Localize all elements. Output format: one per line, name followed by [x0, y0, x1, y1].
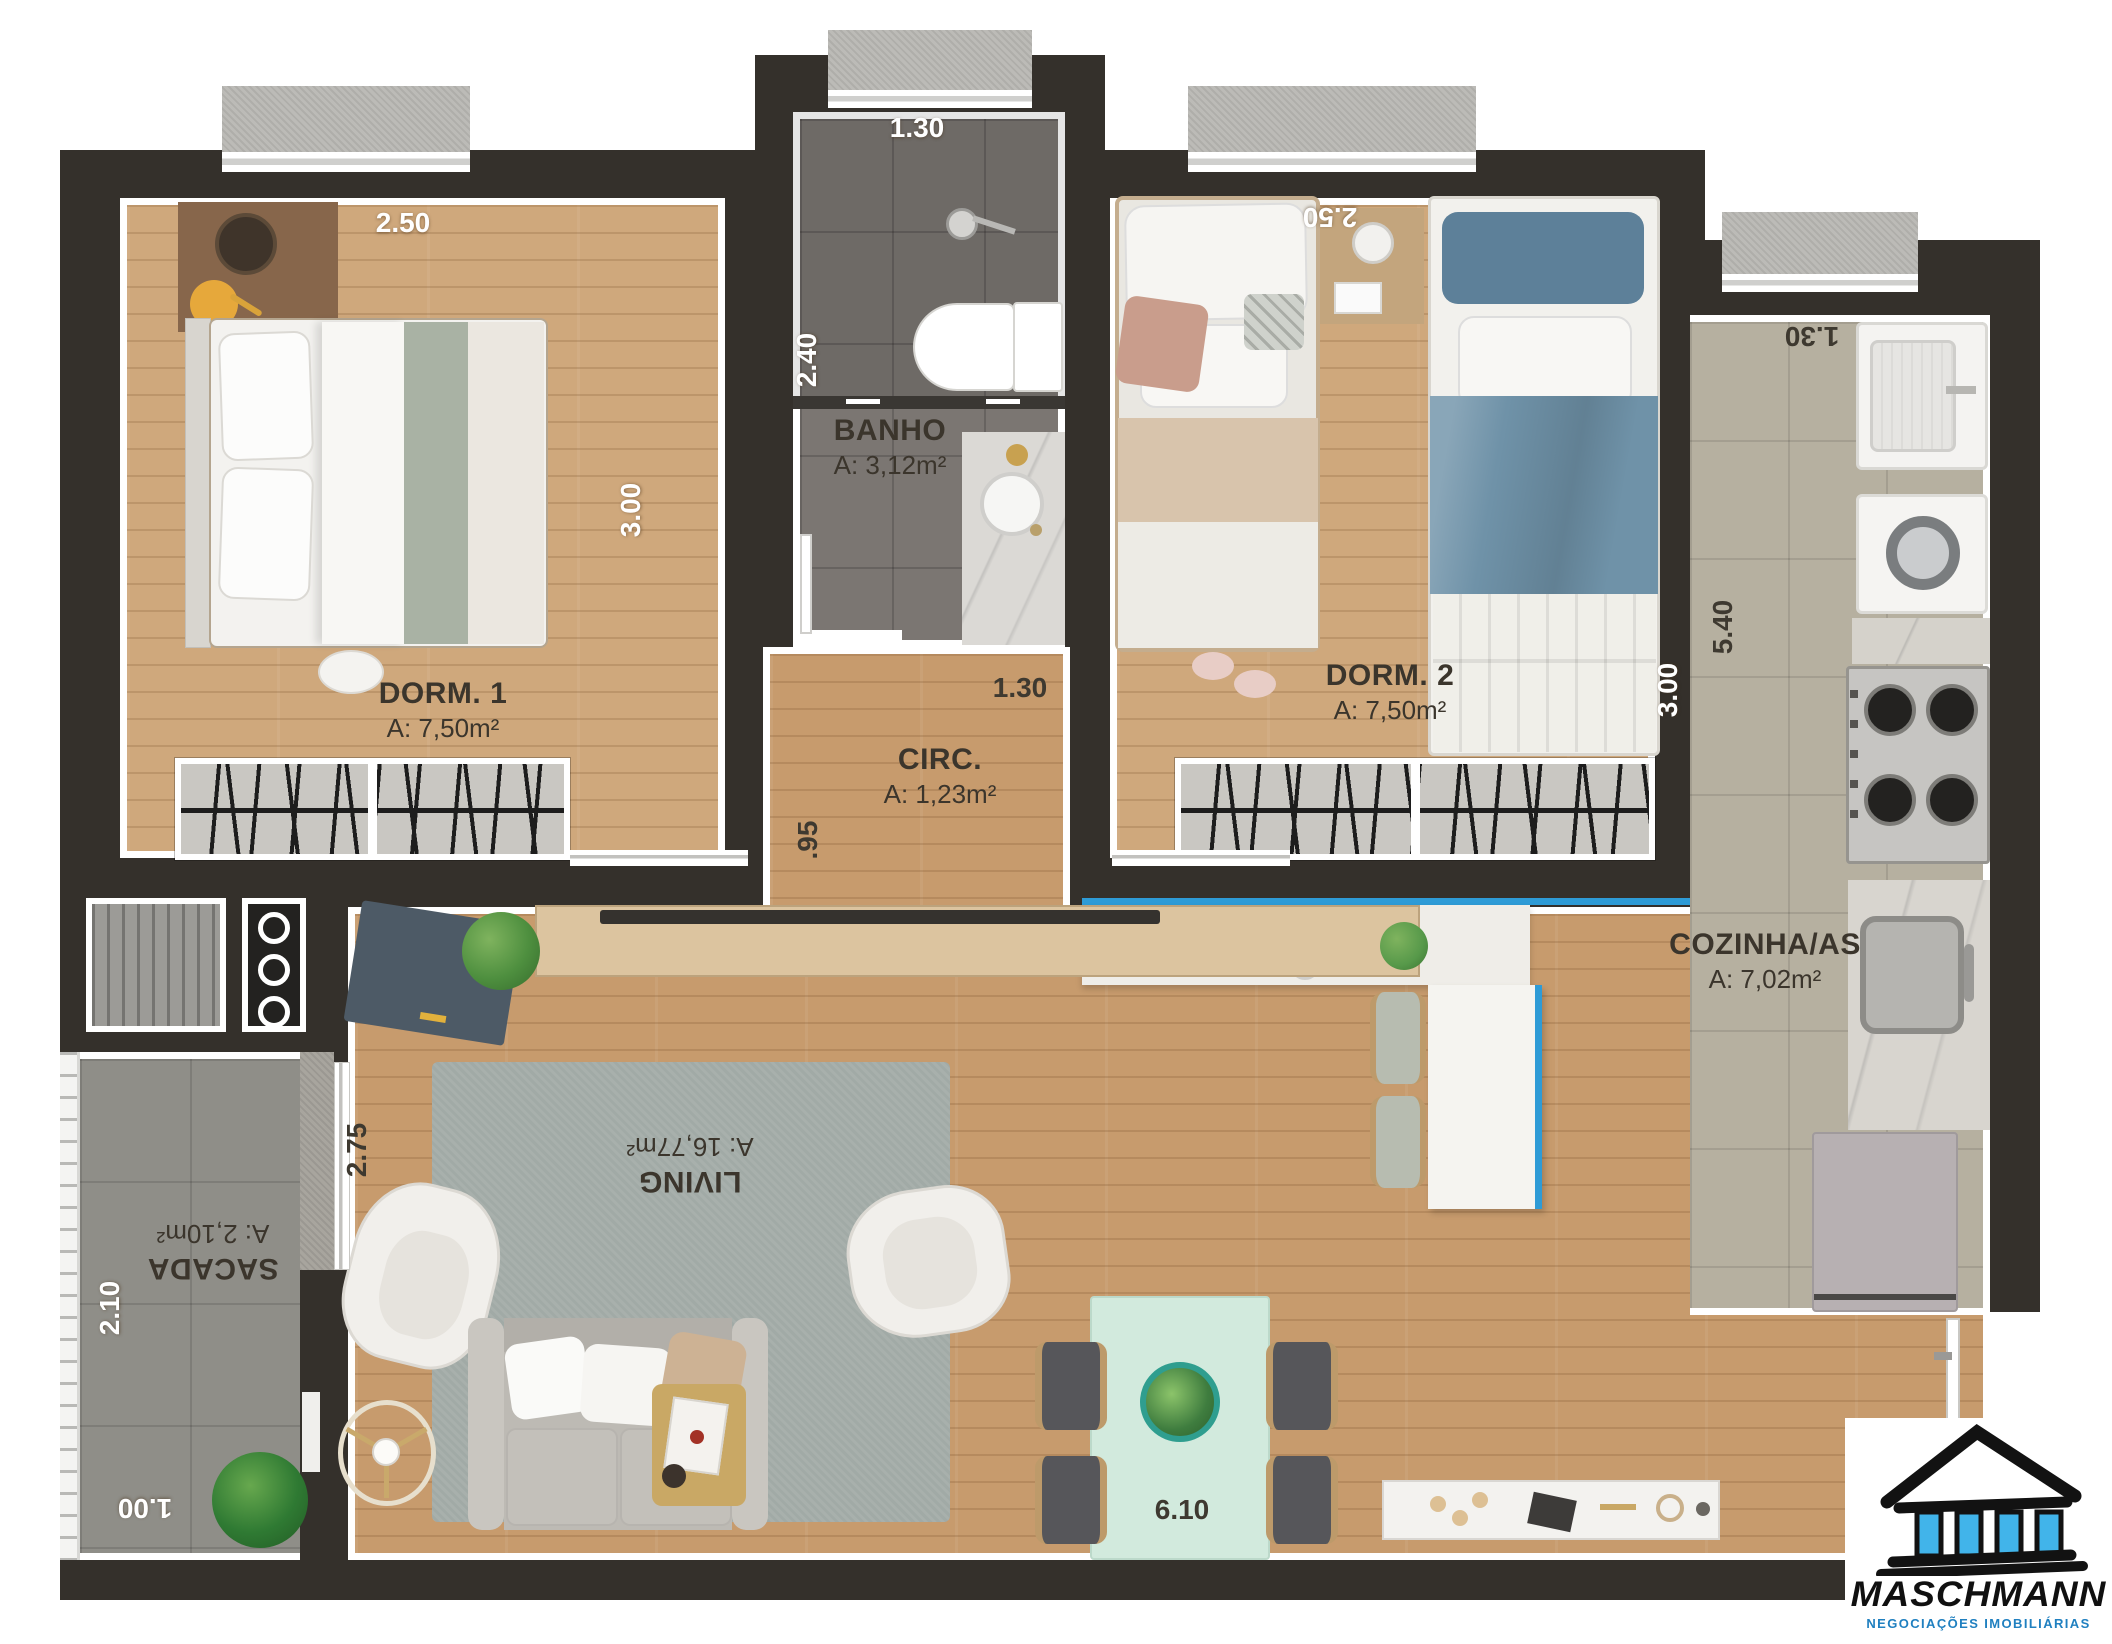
bathroom-window-sill: [828, 30, 1032, 90]
circ-label: CIRC. A: 1,23m²: [884, 742, 997, 810]
dim-circ-passage: 1.30: [993, 672, 1048, 704]
counter-blue-edge: [1082, 898, 1690, 905]
laundry-tank-basin: [1870, 340, 1956, 452]
room-name: DORM. 1: [379, 676, 508, 713]
balcony-plant: [212, 1452, 308, 1548]
bar-stool: [1370, 1096, 1426, 1188]
floor-plan: DORM. 1 A: 7,50m² BANHO A: 3,12m² DORM. …: [0, 0, 2112, 1644]
dim-banho-depth: 2.40: [791, 333, 823, 388]
floor-lamp-bulb: [372, 1438, 400, 1466]
dim-banho-width: 1.30: [890, 112, 945, 144]
room-name: LIVING: [626, 1163, 753, 1200]
vanity-gold-dish: [1006, 444, 1028, 466]
dorm2-book: [1334, 282, 1382, 314]
dim-dorm2-width: 2.50: [1303, 201, 1358, 233]
balcony-door-lower: [302, 1392, 320, 1472]
shower-divider-handle: [986, 399, 1020, 404]
dorm2-window-sill: [1188, 86, 1476, 152]
dining-chair: [1266, 1456, 1338, 1544]
dim-kitchen-width: 1.30: [1785, 320, 1840, 352]
brand-logo: MASCHMANN NEGOCIAÇÕES IMOBILIÁRIAS: [1845, 1418, 2112, 1644]
sofa-arm: [468, 1318, 504, 1530]
greek-temple-icon: [1859, 1418, 2099, 1576]
side-table-cup: [662, 1464, 686, 1488]
room-area: A: 7,50m²: [379, 712, 508, 744]
dorm2-bedR-duvet: [1430, 396, 1658, 594]
fridge-base-line: [1814, 1294, 1956, 1300]
dorm1-throw-cream: [468, 322, 544, 644]
dim-dorm1-width: 2.50: [376, 207, 431, 239]
dorm1-bed-headboard: [185, 318, 211, 648]
magazine-dot: [690, 1430, 704, 1444]
dim-kitchen-depth: 5.40: [1707, 600, 1739, 655]
dorm2-vase: [1352, 222, 1394, 264]
dorm2-bedL-sheet: [1118, 522, 1318, 648]
kitchen-window: [1722, 274, 1918, 292]
sideboard-ball: [1696, 1502, 1710, 1516]
stove-burner: [1926, 774, 1978, 826]
dining-chair: [1266, 1342, 1338, 1430]
cooktop-ring-icon: [258, 954, 290, 986]
room-name: SACADA: [147, 1250, 278, 1287]
room-area: A: 2,10m²: [147, 1218, 278, 1250]
dorm1-throw-green: [404, 322, 468, 644]
dorm2-wardrobe: [1175, 758, 1655, 860]
banho-label: BANHO A: 3,12m²: [834, 413, 947, 481]
kitchen-peninsula-return: [1428, 985, 1542, 1209]
brand-tagline: NEGOCIAÇÕES IMOBILIÁRIAS: [1866, 1616, 2090, 1631]
fridge: [1812, 1132, 1958, 1312]
room-area: A: 7,02m²: [1669, 963, 1861, 995]
dorm1-window: [222, 152, 470, 172]
shower-divider-handle: [846, 399, 880, 404]
cozinha-label: COZINHA/AS A: 7,02m²: [1669, 927, 1861, 995]
counter-blue-edge: [1535, 985, 1542, 1209]
balcony-planter: [300, 1052, 334, 1270]
bathroom-window: [828, 90, 1032, 108]
plant-icon: [462, 912, 540, 990]
dorm1-pillow: [218, 330, 314, 461]
entry-door-handle: [1934, 1352, 1952, 1360]
dorm1-sliding-door: [570, 850, 748, 866]
dim-dorm2-depth: 3.00: [1652, 663, 1684, 718]
dorm2-bedR-blue-pillow: [1442, 212, 1644, 304]
slippers-icon: [1234, 670, 1276, 698]
dining-plant: [1140, 1362, 1220, 1442]
sideboard-decor: [1600, 1504, 1636, 1510]
toilet-tank: [1013, 302, 1063, 392]
dim-dorm1-depth: 3.00: [615, 483, 647, 538]
sideboard-candle: [1472, 1492, 1488, 1508]
room-area: A: 16,77m²: [626, 1131, 753, 1163]
kitchen-sink: [1860, 916, 1964, 1034]
bbq-grill: [86, 898, 226, 1032]
sideboard-candle: [1452, 1510, 1468, 1526]
bathroom-door-opening: [798, 630, 902, 652]
dorm2-label: DORM. 2 A: 7,50m²: [1326, 658, 1455, 726]
room-name: DORM. 2: [1326, 658, 1455, 695]
cooktop-ring-icon: [258, 912, 290, 944]
room-area: A: 7,50m²: [1326, 694, 1455, 726]
dim-sacada-depth: 2.10: [94, 1281, 126, 1336]
dining-chair: [1035, 1342, 1107, 1430]
sacada-label: SACADA A: 2,10m²: [147, 1218, 278, 1286]
stove-burner: [1864, 684, 1916, 736]
sofa-cushion: [506, 1428, 618, 1526]
dim-living-width: 2.75: [341, 1123, 373, 1178]
room-name: COZINHA/AS: [1669, 927, 1861, 964]
dorm1-window-sill: [222, 86, 470, 152]
dorm2-bedL-pink-pillow: [1114, 295, 1209, 394]
kitchen-window-sill: [1722, 212, 1918, 274]
dorm2-window: [1188, 152, 1476, 172]
cooktop-ring-icon: [258, 996, 290, 1028]
tv: [600, 910, 1160, 924]
shower-head-icon: [946, 208, 978, 240]
dorm1-bench: [318, 650, 384, 694]
stove-burner: [1864, 774, 1916, 826]
kitchen-faucet: [1964, 944, 1974, 1002]
washer-door: [1886, 516, 1960, 590]
tank-faucet: [1946, 386, 1976, 394]
dorm2-bedL-beige-blanket: [1118, 418, 1318, 522]
brand-name: MASCHMANN: [1851, 1577, 2107, 1612]
room-name: BANHO: [834, 413, 947, 450]
dorm1-label: DORM. 1 A: 7,50m²: [379, 676, 508, 744]
shower-divider: [793, 396, 1065, 409]
stove-knobs: [1850, 690, 1858, 840]
slippers-icon: [1192, 652, 1234, 680]
dorm1-tray: [215, 213, 277, 275]
dorm1-wardrobe: [175, 758, 570, 860]
room-area: A: 1,23m²: [884, 778, 997, 810]
plant-icon: [1380, 922, 1428, 970]
dim-sacada-width: 1.00: [118, 1492, 173, 1524]
vanity-tap: [1030, 524, 1042, 536]
stove-burner: [1926, 684, 1978, 736]
sideboard-plate: [1656, 1494, 1684, 1522]
dorm2-bedR-white-pillow: [1458, 316, 1632, 408]
sideboard-candle: [1430, 1496, 1446, 1512]
dim-dining-width: 6.10: [1155, 1494, 1210, 1526]
room-area: A: 3,12m²: [834, 449, 947, 481]
dorm2-bedR-quilt: [1433, 594, 1656, 752]
living-label: LIVING A: 16,77m²: [626, 1131, 753, 1199]
kitchen-counter-marble: [1852, 618, 1990, 664]
dorm1-duvet-fold: [322, 322, 406, 644]
dorm1-pillow: [218, 466, 315, 601]
dorm2-bedL-pattern-pillow: [1244, 294, 1304, 350]
bathroom-door-leaf: [800, 534, 812, 634]
dining-chair: [1035, 1456, 1107, 1544]
toilet-bowl: [913, 303, 1015, 391]
balcony-railing: [60, 1052, 80, 1560]
bar-stool: [1370, 992, 1426, 1084]
dim-circ-width: .95: [792, 821, 824, 860]
room-name: CIRC.: [884, 742, 997, 779]
dorm2-sliding-door: [1112, 850, 1290, 866]
